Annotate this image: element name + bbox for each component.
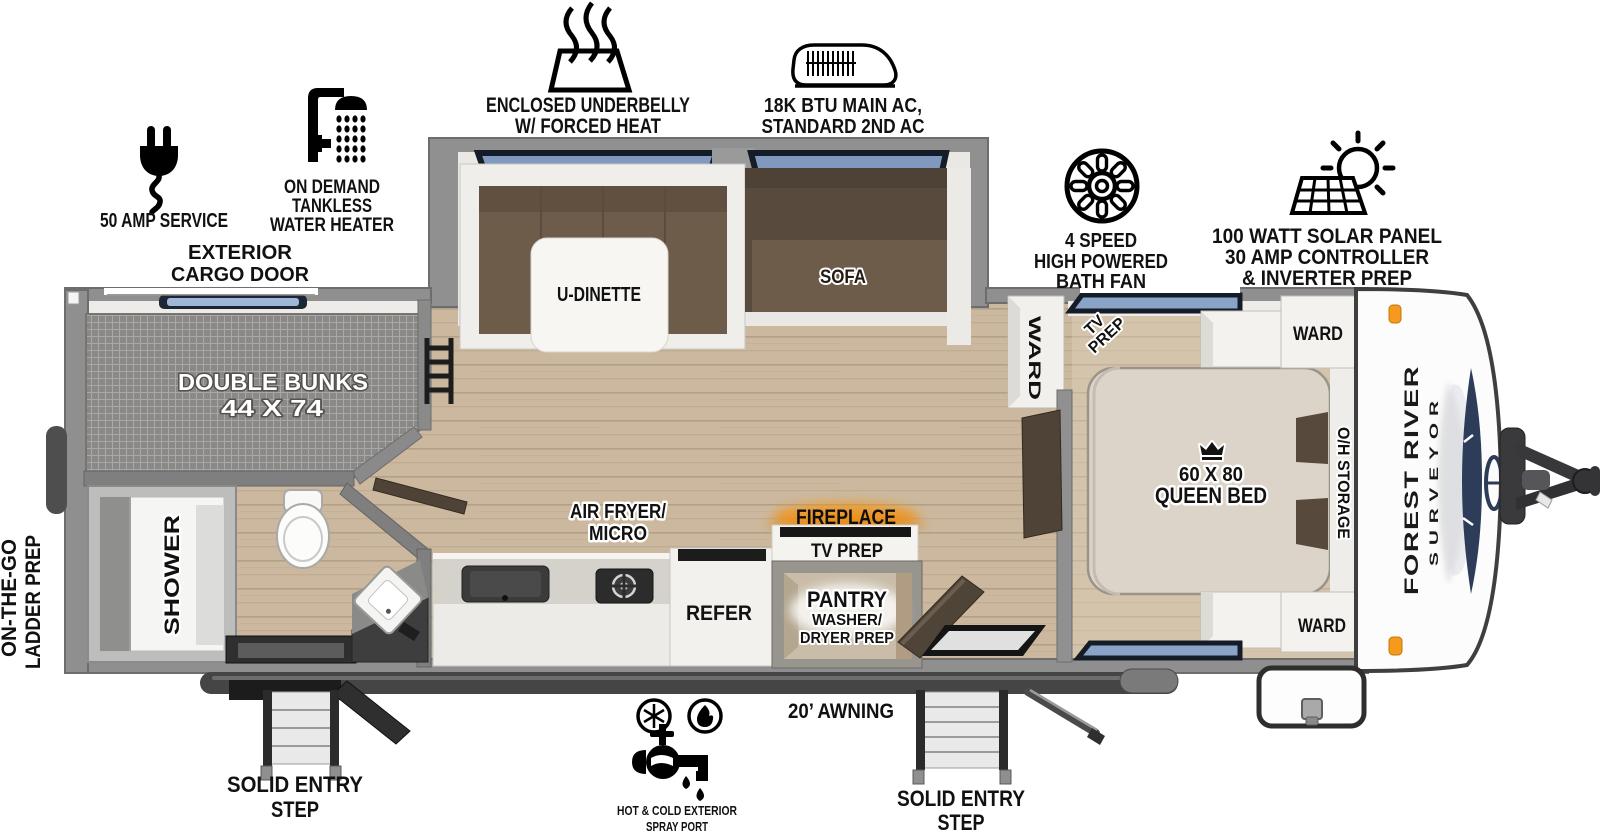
- svg-text:STANDARD 2ND AC: STANDARD 2ND AC: [762, 116, 925, 138]
- svg-text:DRYER PREP: DRYER PREP: [800, 630, 894, 647]
- svg-text:WARD: WARD: [1293, 324, 1343, 345]
- svg-text:ENCLOSED UNDERBELLY: ENCLOSED UNDERBELLY: [486, 94, 690, 117]
- svg-text:44 X 74: 44 X 74: [221, 395, 323, 421]
- svg-text:CARGO DOOR: CARGO DOOR: [171, 264, 310, 286]
- svg-text:FIREPLACE: FIREPLACE: [796, 506, 896, 529]
- svg-text:HIGH POWERED: HIGH POWERED: [1034, 251, 1168, 273]
- svg-text:AIR FRYER/: AIR FRYER/: [570, 501, 666, 523]
- svg-text:O/H STORAGE: O/H STORAGE: [1334, 427, 1353, 539]
- svg-text:50 AMP SERVICE: 50 AMP SERVICE: [100, 210, 228, 232]
- svg-text:U-DINETTE: U-DINETTE: [557, 284, 641, 306]
- svg-text:BATH FAN: BATH FAN: [1056, 271, 1146, 293]
- svg-text:18K BTU MAIN AC,: 18K BTU MAIN AC,: [764, 95, 922, 117]
- svg-text:4 SPEED: 4 SPEED: [1065, 230, 1137, 252]
- svg-text:30 AMP CONTROLLER: 30 AMP CONTROLLER: [1225, 246, 1429, 269]
- svg-text:SHOWER: SHOWER: [161, 515, 184, 635]
- svg-text:SOFA: SOFA: [820, 267, 866, 288]
- svg-text:SOLID ENTRY: SOLID ENTRY: [897, 786, 1025, 811]
- svg-text:WARD: WARD: [1298, 616, 1346, 637]
- svg-text:ON-THE-GO: ON-THE-GO: [0, 539, 21, 657]
- svg-text:SURVEYOR: SURVEYOR: [1427, 394, 1441, 566]
- svg-text:TANKLESS: TANKLESS: [292, 196, 372, 217]
- svg-text:ON DEMAND: ON DEMAND: [284, 177, 380, 198]
- svg-text:EXTERIOR: EXTERIOR: [188, 242, 293, 264]
- svg-text:STEP: STEP: [938, 810, 985, 835]
- svg-text:REFER: REFER: [686, 602, 752, 625]
- svg-text:W/ FORCED HEAT: W/ FORCED HEAT: [515, 115, 661, 138]
- svg-text:TV PREP: TV PREP: [811, 541, 883, 562]
- svg-text:20’ AWNING: 20’ AWNING: [788, 700, 894, 723]
- svg-text:WATER HEATER: WATER HEATER: [270, 215, 394, 236]
- svg-text:SPRAY PORT: SPRAY PORT: [646, 819, 708, 834]
- svg-text:STEP: STEP: [271, 797, 319, 822]
- svg-text:PANTRY: PANTRY: [807, 587, 887, 612]
- svg-text:FOREST RIVER: FOREST RIVER: [1402, 365, 1423, 595]
- svg-text:& INVERTER PREP: & INVERTER PREP: [1242, 267, 1412, 290]
- svg-text:HOT & COLD EXTERIOR: HOT & COLD EXTERIOR: [617, 803, 737, 818]
- svg-text:SOLID ENTRY: SOLID ENTRY: [227, 772, 363, 797]
- svg-text:WASHER/: WASHER/: [812, 612, 883, 629]
- svg-text:LADDER PREP: LADDER PREP: [22, 535, 45, 669]
- svg-text:100 WATT SOLAR PANEL: 100 WATT SOLAR PANEL: [1212, 225, 1442, 248]
- svg-text:DOUBLE BUNKS: DOUBLE BUNKS: [178, 369, 368, 395]
- svg-text:QUEEN BED: QUEEN BED: [1155, 483, 1267, 508]
- svg-text:MICRO: MICRO: [589, 523, 647, 545]
- svg-text:WARD: WARD: [1025, 316, 1044, 400]
